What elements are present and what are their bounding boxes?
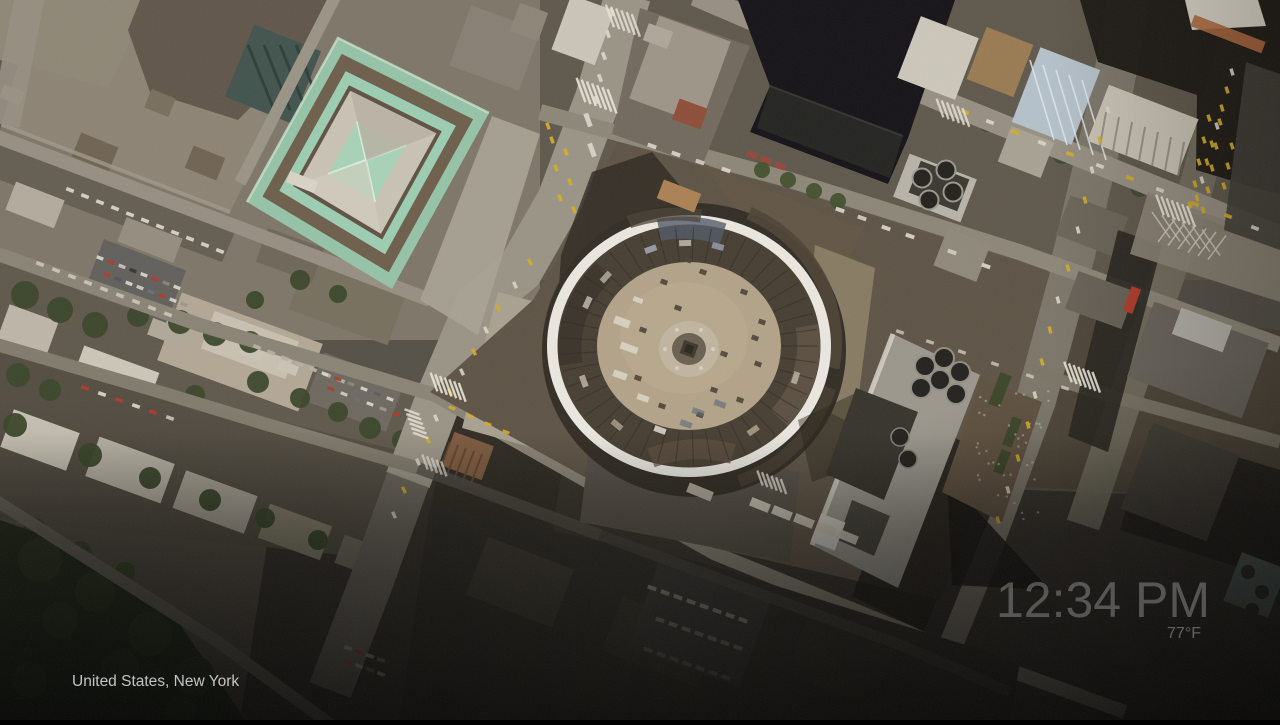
svg-text:United States, New York: United States, New York: [72, 673, 239, 690]
svg-text:77°F: 77°F: [1167, 625, 1201, 642]
svg-text:12:34 PM: 12:34 PM: [996, 572, 1210, 628]
